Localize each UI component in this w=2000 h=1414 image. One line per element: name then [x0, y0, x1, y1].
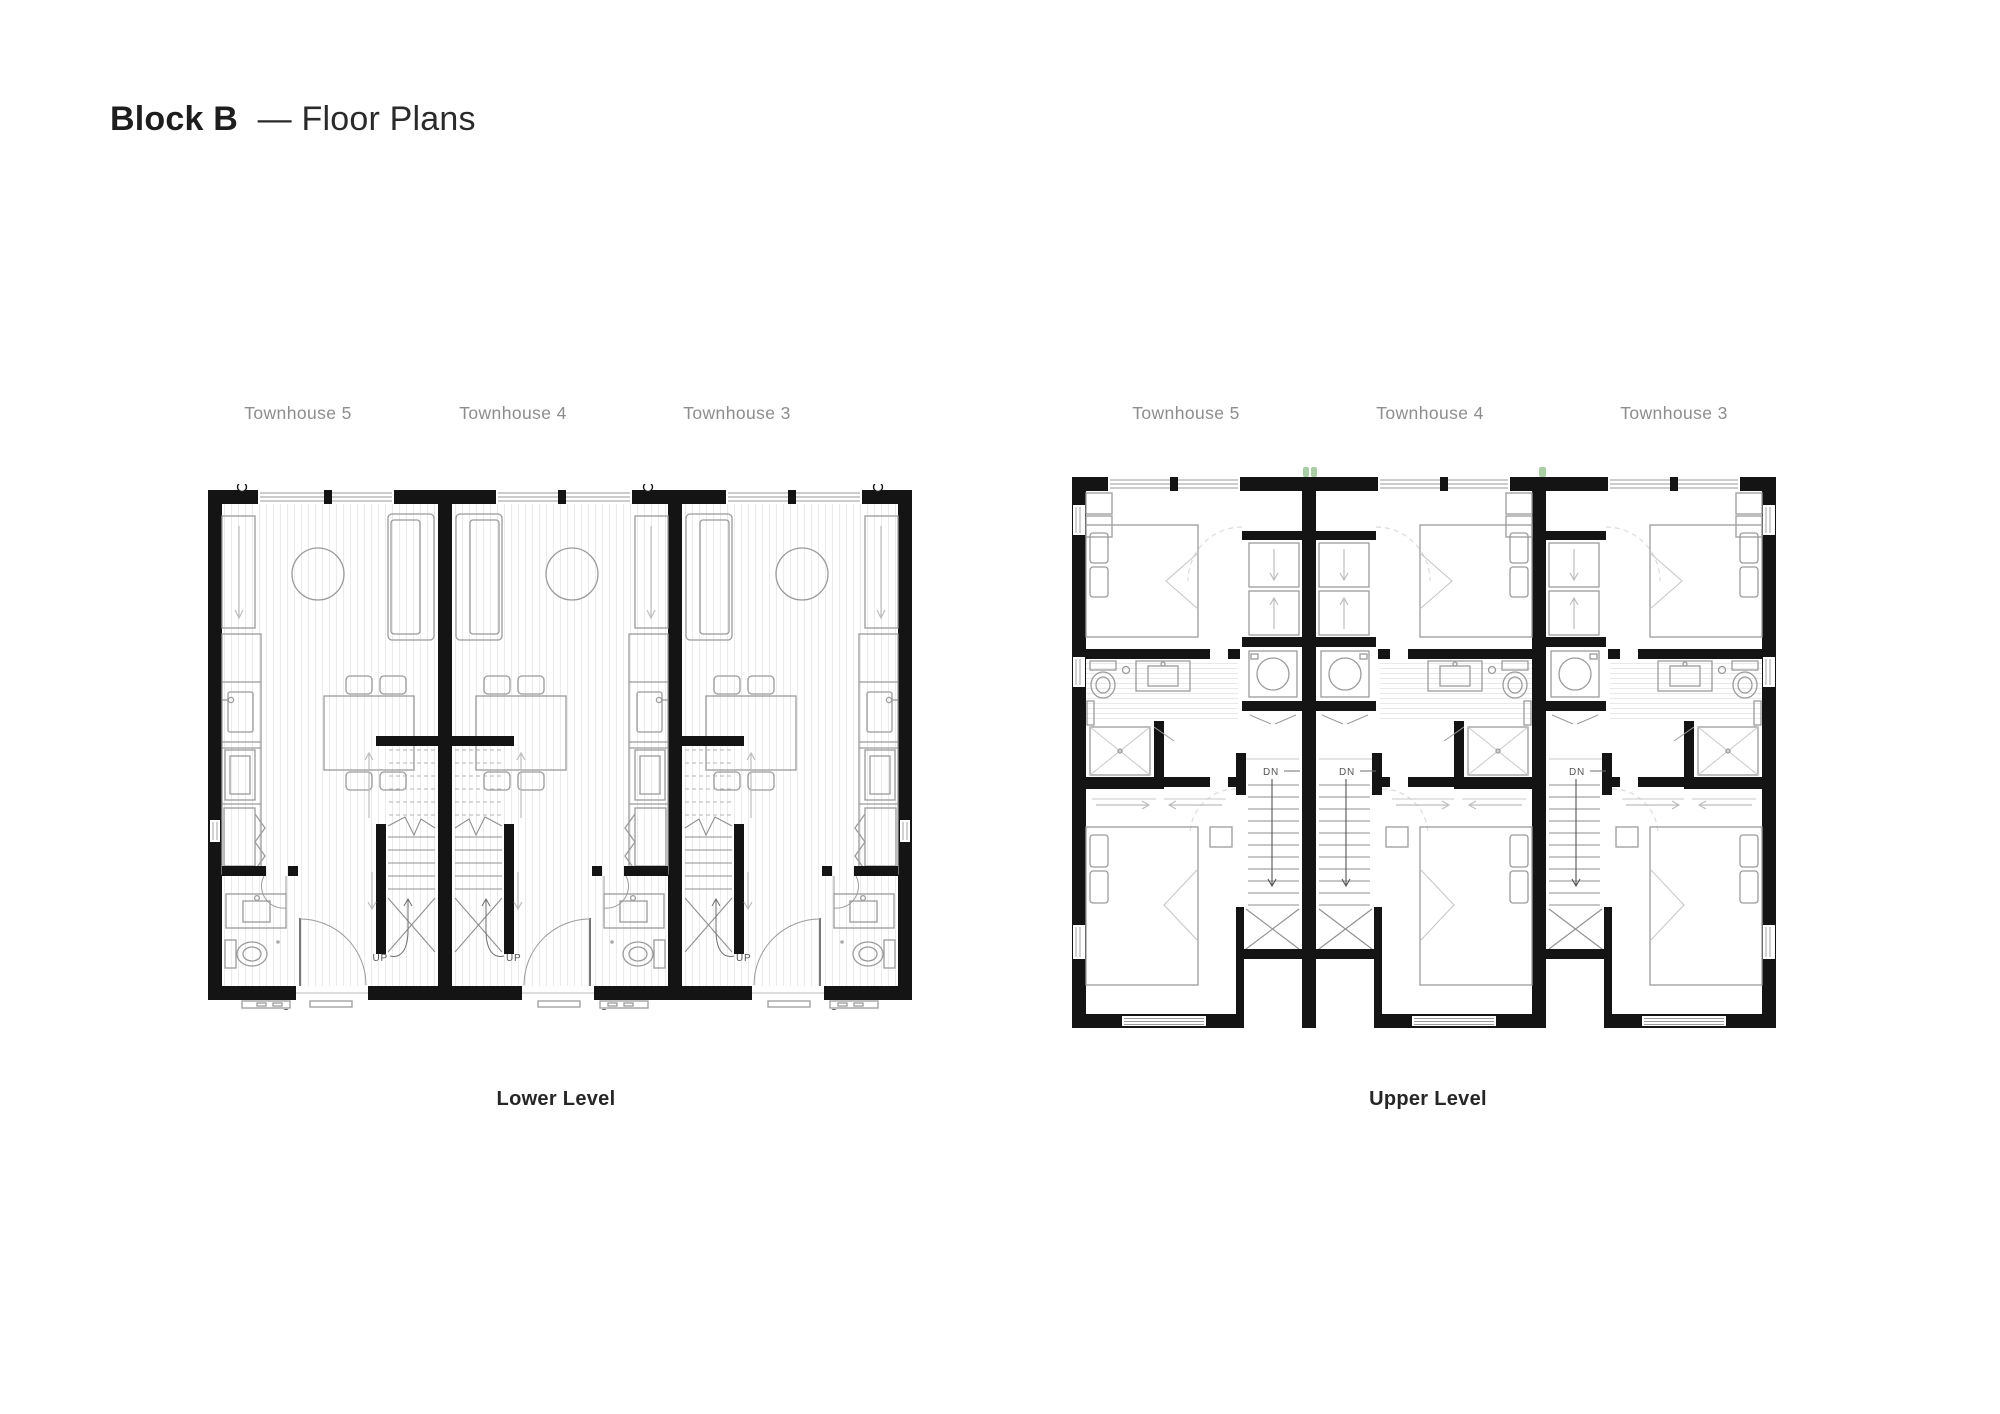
- stair-label-up: UP: [506, 953, 522, 964]
- wall-right: [898, 490, 912, 1000]
- stair-label-dn: DN: [1263, 767, 1279, 778]
- upper-level-caption: Upper Level: [1369, 1088, 1487, 1111]
- party-wall: [668, 490, 682, 1000]
- lower-level-caption: Lower Level: [497, 1088, 616, 1111]
- stair-label-dn: DN: [1339, 767, 1355, 778]
- planter-green: [1303, 467, 1546, 477]
- unit-townhouse-3: [1546, 477, 1762, 1028]
- floor-plan-sheet: Block B — Floor Plans Townhouse 5 Townho…: [0, 0, 2000, 1414]
- upper-label-townhouse-3: Townhouse 3: [1620, 403, 1728, 424]
- wall-left: [208, 490, 222, 1000]
- page-title-block: Block B: [110, 100, 238, 138]
- stair-label-dn: DN: [1569, 767, 1585, 778]
- lower-label-townhouse-4: Townhouse 4: [459, 403, 567, 424]
- party-wall: [1532, 477, 1546, 1028]
- upper-label-townhouse-4: Townhouse 4: [1376, 403, 1484, 424]
- unit-townhouse-5: [222, 484, 438, 1010]
- upper-label-townhouse-5: Townhouse 5: [1132, 403, 1240, 424]
- lower-level-plan: UP UP UP: [208, 484, 912, 1010]
- walls: [1072, 477, 1776, 1028]
- unit-townhouse-4: [452, 484, 668, 1010]
- stair-label-up: UP: [736, 953, 752, 964]
- page-title: Block B — Floor Plans: [110, 100, 476, 139]
- stair-label-up: UP: [373, 953, 389, 964]
- party-wall: [1302, 477, 1316, 1028]
- lower-label-townhouse-5: Townhouse 5: [244, 403, 352, 424]
- lower-label-townhouse-3: Townhouse 3: [683, 403, 791, 424]
- unit-townhouse-3: [682, 484, 898, 1010]
- unit-townhouse-4: [1316, 477, 1532, 1028]
- page-title-rest: — Floor Plans: [258, 100, 476, 138]
- unit-townhouse-5: [1086, 477, 1302, 1028]
- side-windows: [1073, 505, 1775, 959]
- party-wall: [438, 490, 452, 1000]
- upper-level-plan: DN DN DN: [1072, 465, 1776, 1042]
